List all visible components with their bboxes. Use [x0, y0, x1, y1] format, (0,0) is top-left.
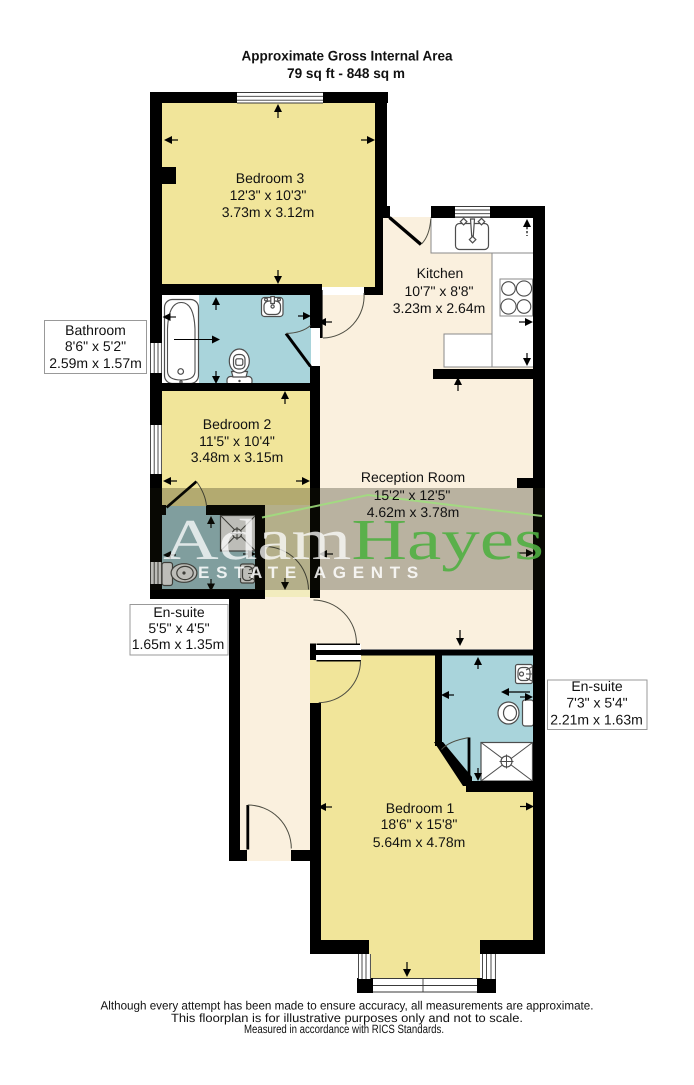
svg-text:Bedroom 1: Bedroom 1: [386, 800, 455, 816]
svg-text:11'5" x 10'4": 11'5" x 10'4": [199, 433, 275, 449]
svg-text:En-suite: En-suite: [571, 678, 623, 694]
svg-text:8'6" x 5'2": 8'6" x 5'2": [65, 338, 126, 354]
svg-text:Reception Room: Reception Room: [361, 469, 465, 485]
svg-text:2.21m x 1.63m: 2.21m x 1.63m: [550, 712, 643, 728]
svg-text:Bathroom: Bathroom: [65, 322, 126, 338]
svg-text:5.64m x 4.78m: 5.64m x 4.78m: [373, 834, 466, 850]
svg-text:Bedroom 2: Bedroom 2: [203, 416, 272, 432]
svg-text:15'2" x 12'5": 15'2" x 12'5": [374, 487, 451, 503]
svg-text:2.59m x 1.57m: 2.59m x 1.57m: [49, 355, 142, 371]
svg-text:7'3" x 5'4": 7'3" x 5'4": [566, 695, 627, 711]
svg-text:ESTATE AGENTS: ESTATE AGENTS: [198, 564, 425, 582]
svg-text:79 sq ft - 848 sq m: 79 sq ft - 848 sq m: [287, 65, 405, 81]
svg-text:12'3" x 10'3": 12'3" x 10'3": [230, 187, 307, 203]
svg-text:Approximate Gross Internal Are: Approximate Gross Internal Area: [242, 48, 453, 64]
svg-text:3.48m x 3.15m: 3.48m x 3.15m: [191, 449, 284, 465]
svg-text:Kitchen: Kitchen: [417, 265, 464, 281]
svg-text:1.65m x 1.35m: 1.65m x 1.35m: [132, 636, 225, 652]
svg-text:AdamHayes: AdamHayes: [163, 507, 544, 572]
svg-text:4.62m x 3.78m: 4.62m x 3.78m: [367, 504, 460, 520]
svg-text:En-suite: En-suite: [153, 604, 205, 620]
svg-text:3.73m x 3.12m: 3.73m x 3.12m: [222, 204, 315, 220]
svg-text:5'5" x 4'5": 5'5" x 4'5": [148, 620, 209, 636]
svg-text:18'6" x 15'8": 18'6" x 15'8": [381, 816, 458, 832]
svg-text:10'7" x 8'8": 10'7" x 8'8": [405, 283, 474, 299]
svg-text:Bedroom 3: Bedroom 3: [236, 170, 305, 186]
svg-text:3.23m x 2.64m: 3.23m x 2.64m: [393, 300, 486, 316]
svg-text:Measured in accordance with RI: Measured in accordance with RICS Standar…: [244, 1022, 444, 1036]
